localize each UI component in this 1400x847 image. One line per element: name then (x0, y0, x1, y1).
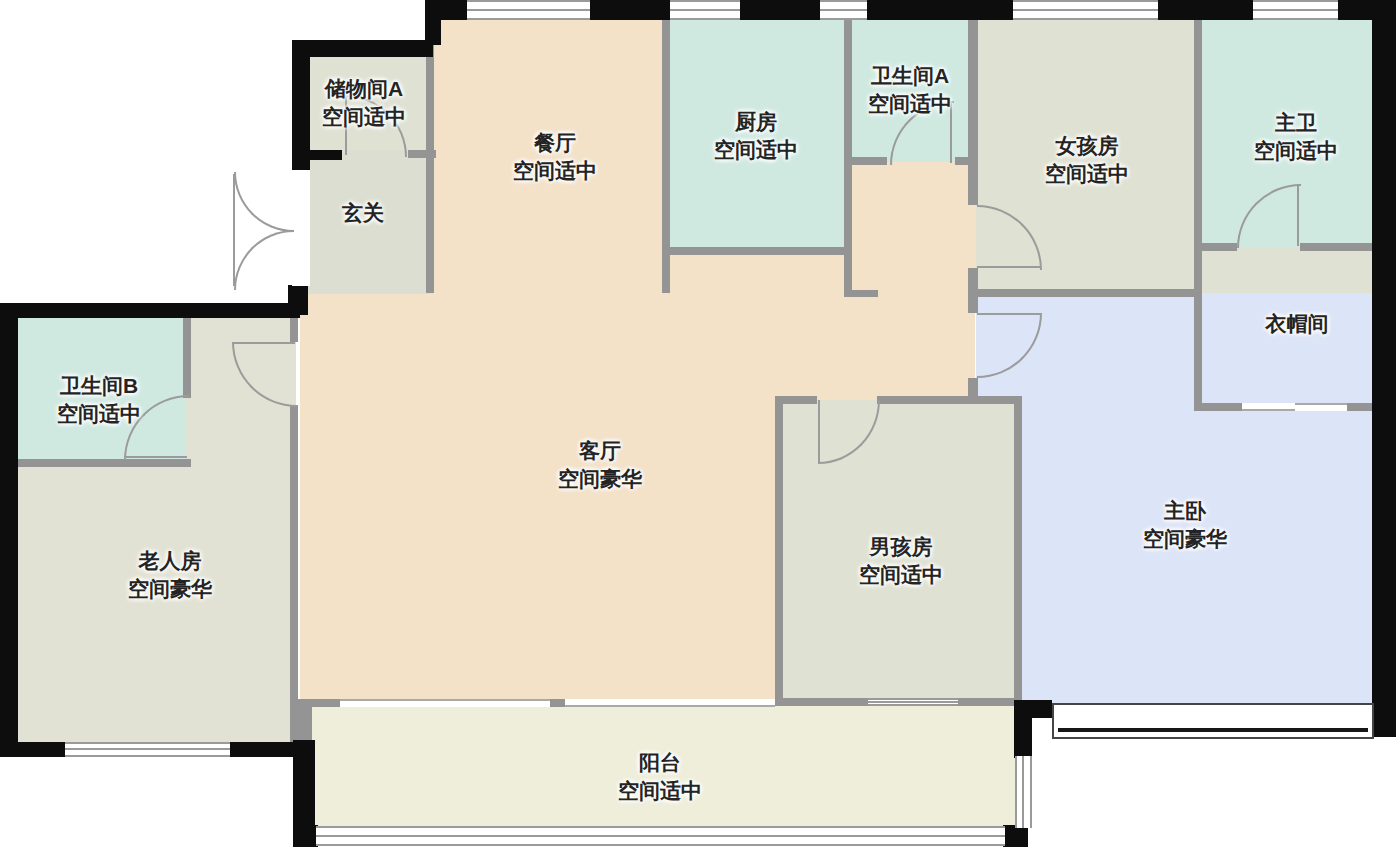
window-kitchen-2 (820, 0, 867, 20)
room-name: 主卧 (1143, 497, 1227, 525)
wall (1347, 403, 1375, 411)
room-name: 卫生间A (868, 62, 952, 90)
wall (1194, 18, 1202, 250)
opening-cloakroom-1 (1242, 403, 1295, 411)
room-name: 衣帽间 (1266, 310, 1329, 338)
door-leaf-master-bath (1297, 184, 1299, 246)
opening-cloakroom-2 (1295, 403, 1347, 411)
wall (1014, 396, 1022, 705)
label-dining: 餐厅 空间适中 (513, 129, 597, 186)
room-status: 空间适中 (868, 90, 952, 118)
wall (1194, 250, 1202, 411)
room-status: 空间豪华 (128, 575, 212, 603)
door-leaf-elderly (232, 342, 295, 344)
window-balcony-bottom (316, 826, 1005, 846)
wall (0, 303, 300, 318)
label-storage-a: 储物间A 空间适中 (322, 75, 406, 132)
wall (230, 742, 300, 757)
wall (290, 318, 298, 342)
wall (968, 297, 978, 313)
room-name: 阳台 (618, 749, 702, 777)
wall (292, 40, 433, 57)
room-name: 卫生间B (57, 372, 141, 400)
wall (548, 699, 565, 707)
wall (968, 18, 978, 205)
label-bath-b: 卫生间B 空间适中 (57, 372, 141, 429)
wall (426, 45, 434, 293)
door-leaf-boys (818, 400, 820, 462)
wall (867, 0, 1013, 20)
room-name: 餐厅 (513, 129, 597, 157)
window-elderly (65, 742, 230, 757)
door-leaf-master (977, 313, 1040, 315)
wall (1158, 0, 1253, 20)
wall (958, 698, 1022, 706)
room-status: 空间适中 (859, 561, 943, 589)
wall (292, 150, 342, 160)
room-name: 男孩房 (859, 533, 943, 561)
wall (662, 247, 852, 255)
wall (740, 0, 820, 20)
room-status: 空间适中 (618, 777, 702, 805)
label-kitchen: 厨房 空间适中 (714, 108, 798, 165)
room-status: 空间适中 (714, 136, 798, 164)
window-master-bay (1052, 703, 1374, 739)
room-name: 主卫 (1254, 109, 1338, 137)
wall (425, 0, 441, 45)
window-master-bath (1253, 0, 1338, 20)
window-boys-balcony (868, 698, 958, 706)
room-status: 空间适中 (322, 103, 406, 131)
label-living: 客厅 空间豪华 (558, 437, 642, 494)
window-girls (1013, 0, 1158, 20)
label-master-bedroom: 主卧 空间豪华 (1143, 497, 1227, 554)
wall (775, 396, 783, 705)
room-status: 空间适中 (57, 400, 141, 428)
wall (844, 18, 852, 293)
wall (296, 699, 312, 744)
opening-entry-door (292, 170, 310, 286)
room-name: 玄关 (342, 199, 384, 227)
room-name: 储物间A (322, 75, 406, 103)
label-elderly: 老人房 空间豪华 (128, 547, 212, 604)
window-balcony-right (1015, 756, 1032, 828)
label-boys: 男孩房 空间适中 (859, 533, 943, 590)
label-bath-a: 卫生间A 空间适中 (868, 62, 952, 119)
door-leaf-girls (977, 266, 1040, 268)
door-leaf-bath-b (124, 456, 187, 458)
wall (968, 289, 1202, 297)
door-leaf-entry (233, 174, 235, 286)
room-status: 空间适中 (1254, 137, 1338, 165)
wall (10, 459, 191, 467)
label-girls: 女孩房 空间适中 (1045, 132, 1129, 189)
room-name: 厨房 (714, 108, 798, 136)
label-balcony: 阳台 空间适中 (618, 749, 702, 806)
floor-plan: 储物间A 空间适中 玄关 餐厅 空间适中 厨房 空间适中 卫生间A 空间适中 女… (0, 0, 1400, 847)
room-status: 空间适中 (513, 157, 597, 185)
wall (844, 290, 878, 297)
room-status: 空间适中 (1045, 160, 1129, 188)
wall (290, 405, 298, 742)
wall (775, 698, 868, 706)
room-name: 客厅 (558, 437, 642, 465)
wall (877, 396, 1022, 404)
wall (1014, 700, 1052, 718)
wall (1194, 403, 1242, 411)
window-slider-living-balcony (565, 699, 775, 707)
label-cloakroom: 衣帽间 (1266, 310, 1329, 338)
wall (293, 825, 318, 847)
room-name: 女孩房 (1045, 132, 1129, 160)
wall (1300, 243, 1372, 251)
door-arc-entry-top (234, 172, 294, 232)
wall (1003, 825, 1028, 847)
room-name: 老人房 (128, 547, 212, 575)
room-status: 空间豪华 (558, 465, 642, 493)
wall (0, 303, 18, 757)
wall (844, 157, 887, 165)
window-slider-living-balcony (340, 699, 550, 707)
room-status: 空间豪华 (1143, 525, 1227, 553)
wall (590, 0, 670, 20)
label-master-bath: 主卫 空间适中 (1254, 109, 1338, 166)
door-arc-entry-bottom (234, 230, 294, 290)
wall (1372, 0, 1396, 737)
room-corridor-area (846, 160, 978, 295)
label-entry: 玄关 (342, 199, 384, 227)
wall (183, 316, 191, 398)
window-kitchen-1 (670, 0, 740, 20)
window-dining (467, 0, 590, 20)
window-frame (1058, 728, 1368, 732)
wall (0, 742, 65, 757)
